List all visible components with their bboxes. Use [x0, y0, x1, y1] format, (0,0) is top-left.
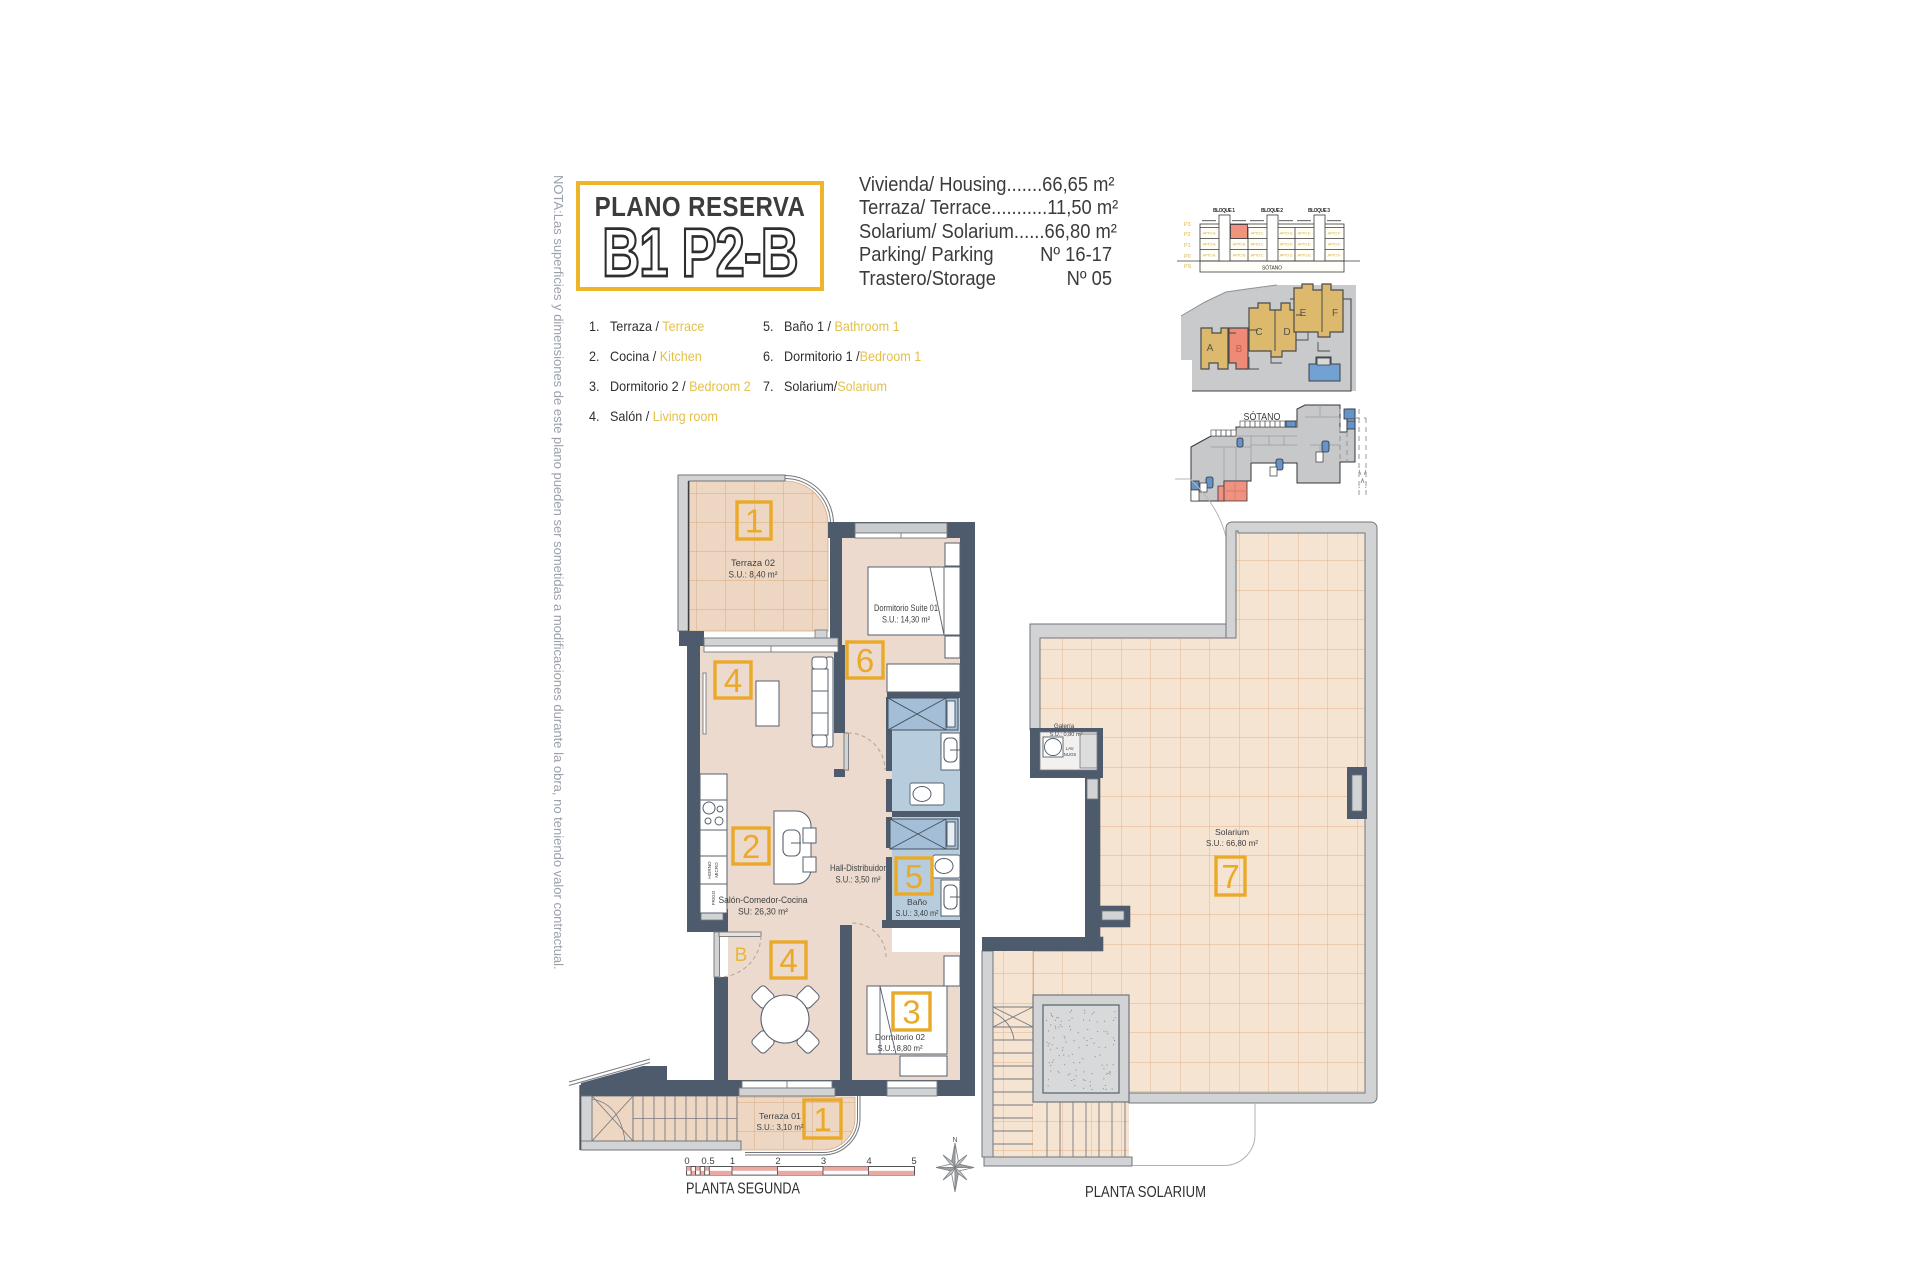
svg-text:BLOQUE 3: BLOQUE 3: [1308, 208, 1330, 214]
svg-text:5: 5: [905, 858, 923, 895]
svg-text:APTO F: APTO F: [1328, 231, 1342, 236]
svg-text:APTO A: APTO A: [1203, 231, 1216, 236]
svg-text:1: 1: [730, 1156, 735, 1167]
svg-text:PS: PS: [1184, 264, 1192, 270]
svg-text:HORNO: HORNO: [707, 861, 712, 879]
svg-text:APTO E: APTO E: [1298, 253, 1311, 258]
svg-text:D: D: [1283, 327, 1290, 338]
svg-text:APTO F: APTO F: [1328, 242, 1342, 247]
svg-text:1: 1: [745, 502, 763, 539]
svg-text:S.U.: 66,80 m²: S.U.: 66,80 m²: [1206, 838, 1258, 848]
svg-text:Baño: Baño: [907, 897, 927, 907]
svg-text:APTO B: APTO B: [1233, 231, 1246, 236]
svg-text:N: N: [952, 1137, 957, 1144]
svg-text:Hall-Distribuidor: Hall-Distribuidor: [830, 863, 886, 873]
svg-text:4: 4: [779, 942, 797, 979]
svg-text:MICRO: MICRO: [714, 862, 719, 878]
svg-text:S.U.: 8,80 m²: S.U.: 8,80 m²: [878, 1043, 923, 1053]
svg-text:APTO B: APTO B: [1233, 242, 1246, 247]
svg-text:2: 2: [775, 1156, 780, 1167]
svg-text:NUOS: NUOS: [1064, 752, 1077, 757]
svg-text:S.U.: 8,40 m²: S.U.: 8,40 m²: [729, 569, 778, 579]
svg-text:P2: P2: [1184, 232, 1191, 238]
svg-text:3: 3: [821, 1156, 826, 1167]
svg-text:APTO F: APTO F: [1328, 253, 1342, 258]
svg-text:APTO A: APTO A: [1203, 253, 1216, 258]
svg-text:APTO C: APTO C: [1251, 242, 1264, 247]
svg-text:A: A: [1207, 343, 1214, 354]
svg-text:Galería: Galería: [1054, 723, 1075, 730]
svg-text:APTO E: APTO E: [1298, 231, 1311, 236]
svg-text:P1: P1: [1184, 243, 1191, 249]
svg-text:1: 1: [813, 1101, 831, 1138]
svg-text:S.U.: 3,50 m²: S.U.: 3,50 m²: [836, 874, 881, 884]
svg-text:7: 7: [1221, 858, 1239, 895]
svg-text:APTO D: APTO D: [1280, 253, 1293, 258]
svg-text:4: 4: [724, 662, 742, 699]
svg-text:S.U.: 14,30 m²: S.U.: 14,30 m²: [882, 614, 930, 624]
svg-text:Terraza 02: Terraza 02: [731, 558, 775, 568]
svg-text:S.U.: 3,40 m²: S.U.: 3,40 m²: [896, 908, 939, 918]
svg-text:0.5: 0.5: [701, 1156, 714, 1167]
svg-text:P0: P0: [1184, 254, 1191, 260]
svg-text:PLANTA SOLARIUM: PLANTA SOLARIUM: [1085, 1184, 1206, 1201]
svg-text:Solarium: Solarium: [1215, 827, 1249, 837]
svg-text:BLOQUE 1: BLOQUE 1: [1213, 208, 1235, 214]
svg-text:P3: P3: [1184, 222, 1191, 228]
svg-text:APTO C: APTO C: [1251, 253, 1264, 258]
svg-text:APTO D: APTO D: [1280, 231, 1293, 236]
svg-text:S.U.: 0,80 m²: S.U.: 0,80 m²: [1050, 732, 1083, 738]
svg-text:APTO C: APTO C: [1251, 231, 1264, 236]
svg-text:C: C: [1255, 327, 1262, 338]
svg-text:APTO E: APTO E: [1298, 242, 1311, 247]
svg-text:0: 0: [684, 1156, 689, 1167]
svg-text:6: 6: [856, 642, 874, 679]
svg-text:SU: 26,30 m²: SU: 26,30 m²: [738, 906, 788, 916]
svg-text:PLANTA SEGUNDA: PLANTA SEGUNDA: [686, 1181, 800, 1198]
svg-text:F: F: [1332, 308, 1338, 319]
svg-text:B: B: [1236, 344, 1243, 355]
svg-text:Dormitorio 02: Dormitorio 02: [875, 1032, 925, 1042]
svg-text:Dormitorio Suite 01: Dormitorio Suite 01: [874, 603, 938, 613]
svg-text:BLOQUE 2: BLOQUE 2: [1261, 208, 1283, 214]
svg-text:4: 4: [866, 1156, 871, 1167]
svg-text:APTO A: APTO A: [1203, 242, 1216, 247]
svg-text:S.U.: 3,10 m²: S.U.: 3,10 m²: [757, 1122, 804, 1132]
svg-text:APTO B: APTO B: [1233, 253, 1246, 258]
svg-text:B: B: [735, 945, 748, 966]
svg-text:APTO D: APTO D: [1280, 242, 1293, 247]
svg-text:2: 2: [742, 828, 760, 865]
svg-text:Salón-Comedor-Cocina: Salón-Comedor-Cocina: [719, 895, 808, 905]
svg-text:E: E: [1300, 308, 1307, 319]
svg-text:FRIGO: FRIGO: [711, 890, 716, 905]
svg-text:SÓTANO: SÓTANO: [1262, 265, 1282, 272]
svg-text:5: 5: [911, 1156, 916, 1167]
svg-text:3: 3: [902, 993, 920, 1030]
svg-text:LAV.: LAV.: [1066, 746, 1075, 751]
svg-text:Terraza 01: Terraza 01: [759, 1111, 801, 1121]
